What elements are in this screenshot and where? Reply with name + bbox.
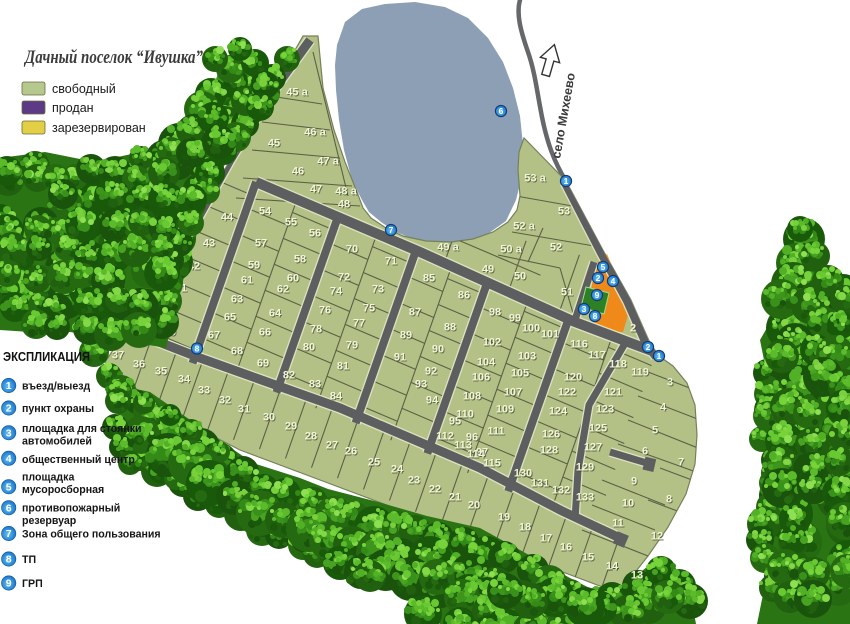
svg-text:12: 12 <box>651 531 663 543</box>
svg-text:47 а: 47 а <box>317 156 339 168</box>
svg-text:64: 64 <box>269 308 282 320</box>
svg-text:78: 78 <box>310 324 322 336</box>
svg-text:47: 47 <box>310 184 322 196</box>
svg-text:37: 37 <box>112 350 124 362</box>
svg-text:31: 31 <box>238 404 250 416</box>
svg-text:110: 110 <box>456 409 474 421</box>
svg-text:51: 51 <box>561 287 573 299</box>
svg-text:79: 79 <box>346 340 358 352</box>
svg-text:54: 54 <box>259 206 272 218</box>
svg-text:61: 61 <box>241 275 253 287</box>
svg-text:36: 36 <box>133 359 145 371</box>
svg-text:70: 70 <box>346 244 358 256</box>
svg-text:59: 59 <box>248 260 260 272</box>
svg-text:11: 11 <box>612 518 624 530</box>
svg-text:68: 68 <box>231 346 243 358</box>
svg-text:76: 76 <box>319 305 331 317</box>
svg-text:35: 35 <box>155 366 167 378</box>
svg-text:86: 86 <box>458 290 470 302</box>
svg-text:81: 81 <box>337 361 349 373</box>
svg-text:128: 128 <box>540 445 558 457</box>
svg-text:105: 105 <box>511 368 529 380</box>
svg-text:100: 100 <box>522 323 540 335</box>
svg-text:71: 71 <box>385 256 397 268</box>
svg-text:34: 34 <box>178 374 191 386</box>
svg-text:99: 99 <box>509 313 521 325</box>
svg-text:80: 80 <box>303 342 315 354</box>
svg-text:102: 102 <box>483 337 501 349</box>
svg-text:74: 74 <box>330 286 343 298</box>
svg-text:133: 133 <box>576 492 594 504</box>
svg-text:15: 15 <box>582 552 594 564</box>
svg-text:131: 131 <box>531 478 549 490</box>
svg-text:104: 104 <box>477 357 496 369</box>
svg-text:21: 21 <box>449 492 461 504</box>
svg-text:55: 55 <box>285 217 297 229</box>
svg-text:124: 124 <box>549 406 568 418</box>
svg-text:50: 50 <box>514 271 526 283</box>
svg-text:122: 122 <box>558 387 576 399</box>
svg-text:87: 87 <box>409 307 421 319</box>
svg-text:46 а: 46 а <box>304 127 326 139</box>
svg-text:58: 58 <box>294 254 306 266</box>
svg-text:132: 132 <box>552 485 570 497</box>
svg-text:119: 119 <box>631 367 649 379</box>
svg-text:77: 77 <box>353 318 365 330</box>
svg-text:27: 27 <box>326 440 338 452</box>
svg-text:84: 84 <box>330 391 343 403</box>
svg-text:106: 106 <box>472 372 490 384</box>
svg-text:90: 90 <box>432 344 444 356</box>
svg-text:91: 91 <box>394 352 406 364</box>
svg-text:43: 43 <box>203 238 215 250</box>
svg-text:8: 8 <box>666 494 672 506</box>
svg-text:63: 63 <box>231 294 243 306</box>
svg-text:45 а: 45 а <box>286 87 308 99</box>
svg-text:107: 107 <box>504 387 522 399</box>
svg-text:73: 73 <box>372 284 384 296</box>
svg-text:117: 117 <box>588 350 606 362</box>
svg-text:32: 32 <box>219 395 231 407</box>
svg-text:4: 4 <box>660 402 667 414</box>
svg-text:67: 67 <box>208 330 220 342</box>
svg-text:6: 6 <box>642 446 648 458</box>
svg-text:93: 93 <box>415 379 427 391</box>
svg-text:48: 48 <box>338 199 350 211</box>
svg-text:16: 16 <box>560 542 572 554</box>
svg-text:116: 116 <box>570 339 588 351</box>
svg-text:18: 18 <box>519 522 531 534</box>
svg-text:49: 49 <box>482 264 494 276</box>
svg-text:23: 23 <box>408 475 420 487</box>
svg-text:111: 111 <box>487 426 504 438</box>
svg-text:2: 2 <box>630 323 636 335</box>
svg-text:28: 28 <box>305 431 317 443</box>
svg-text:126: 126 <box>542 429 560 441</box>
svg-text:98: 98 <box>489 307 501 319</box>
svg-text:56: 56 <box>309 228 321 240</box>
svg-text:72: 72 <box>338 272 350 284</box>
svg-text:88: 88 <box>444 322 456 334</box>
svg-text:125: 125 <box>589 423 607 435</box>
svg-text:10: 10 <box>622 498 634 510</box>
svg-text:75: 75 <box>363 303 375 315</box>
svg-text:20: 20 <box>468 500 480 512</box>
svg-text:121: 121 <box>604 387 622 399</box>
svg-text:130: 130 <box>514 468 532 480</box>
svg-text:52: 52 <box>550 242 562 254</box>
svg-text:69: 69 <box>257 358 269 370</box>
svg-text:49 а: 49 а <box>437 242 459 254</box>
svg-text:33: 33 <box>198 385 210 397</box>
svg-text:19: 19 <box>498 512 510 524</box>
svg-text:83: 83 <box>309 379 321 391</box>
svg-text:48 а: 48 а <box>335 186 357 198</box>
svg-text:29: 29 <box>285 421 297 433</box>
svg-text:109: 109 <box>496 404 514 416</box>
svg-text:66: 66 <box>259 327 271 339</box>
svg-text:7: 7 <box>678 457 684 469</box>
svg-text:82: 82 <box>283 370 295 382</box>
svg-text:3: 3 <box>667 377 673 389</box>
svg-text:89: 89 <box>400 330 412 342</box>
svg-text:57: 57 <box>255 238 267 250</box>
svg-text:118: 118 <box>609 359 627 371</box>
svg-text:62: 62 <box>277 284 289 296</box>
svg-text:50 а: 50 а <box>500 244 522 256</box>
svg-text:24: 24 <box>391 464 404 476</box>
svg-text:26: 26 <box>345 446 357 458</box>
svg-text:52 а: 52 а <box>513 221 535 233</box>
svg-text:127: 127 <box>584 442 602 454</box>
svg-text:103: 103 <box>518 351 536 363</box>
svg-text:112: 112 <box>436 431 454 443</box>
svg-text:123: 123 <box>596 404 614 416</box>
svg-text:120: 120 <box>564 372 582 384</box>
svg-text:53: 53 <box>558 206 570 218</box>
svg-text:53 а: 53 а <box>524 173 546 185</box>
svg-text:129: 129 <box>576 462 594 474</box>
svg-text:115: 115 <box>483 458 501 470</box>
svg-text:22: 22 <box>429 484 441 496</box>
svg-text:9: 9 <box>631 476 637 488</box>
svg-text:108: 108 <box>463 391 481 403</box>
svg-text:94: 94 <box>426 395 439 407</box>
svg-text:101: 101 <box>541 329 559 341</box>
svg-text:17: 17 <box>540 533 552 545</box>
svg-text:25: 25 <box>368 457 380 469</box>
svg-text:85: 85 <box>423 273 435 285</box>
svg-text:46: 46 <box>292 166 304 178</box>
svg-text:65: 65 <box>224 312 236 324</box>
svg-text:44: 44 <box>221 212 234 224</box>
svg-text:5: 5 <box>652 425 658 437</box>
svg-text:30: 30 <box>263 412 275 424</box>
svg-text:92: 92 <box>425 366 437 378</box>
svg-text:45: 45 <box>268 138 280 150</box>
